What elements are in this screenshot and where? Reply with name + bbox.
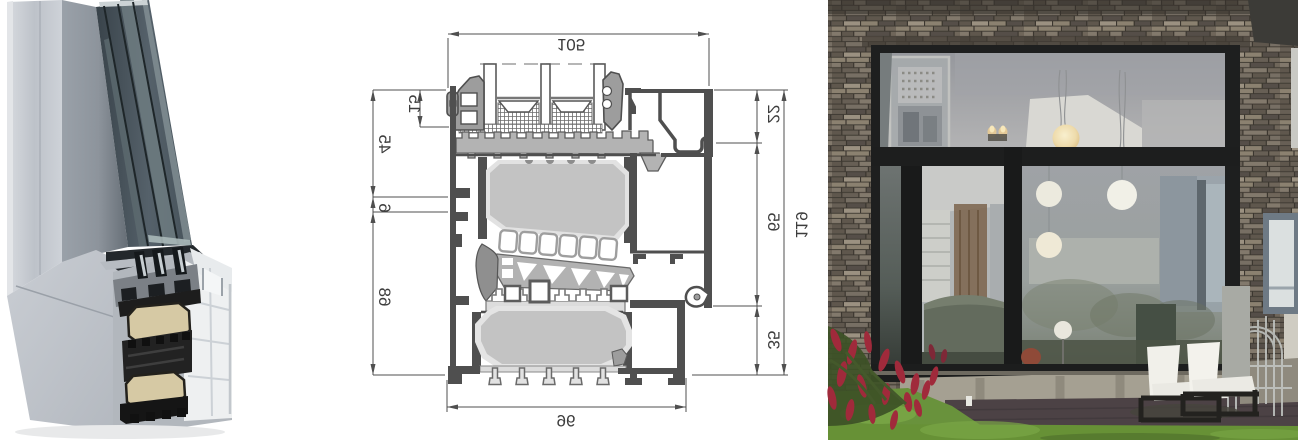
- svg-text:119: 119: [792, 211, 811, 238]
- svg-text:105: 105: [557, 35, 585, 54]
- svg-text:22: 22: [764, 105, 783, 124]
- svg-text:68: 68: [375, 288, 394, 307]
- svg-text:96: 96: [557, 411, 576, 430]
- svg-text:65: 65: [764, 213, 783, 232]
- svg-text:15: 15: [405, 95, 424, 114]
- svg-text:35: 35: [764, 331, 783, 350]
- svg-text:6: 6: [375, 203, 394, 212]
- svg-text:45: 45: [375, 135, 394, 154]
